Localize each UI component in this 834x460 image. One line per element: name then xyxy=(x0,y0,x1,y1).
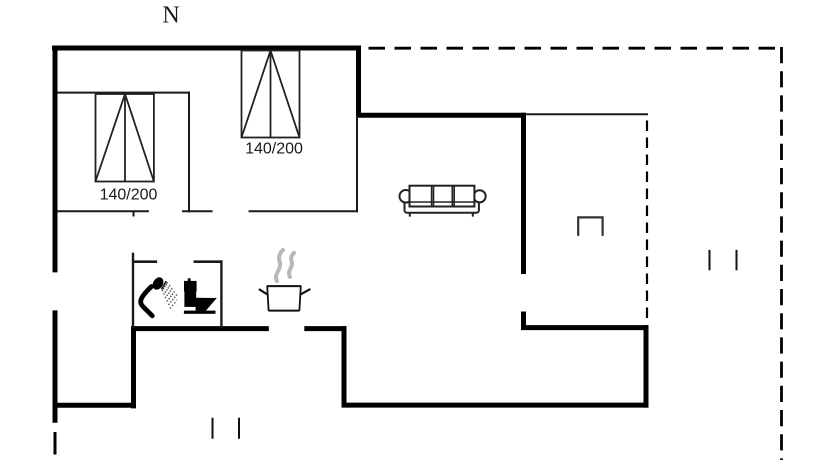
svg-text:140/200: 140/200 xyxy=(100,187,158,204)
svg-text:N: N xyxy=(162,3,179,29)
svg-text:140/200: 140/200 xyxy=(245,141,303,158)
